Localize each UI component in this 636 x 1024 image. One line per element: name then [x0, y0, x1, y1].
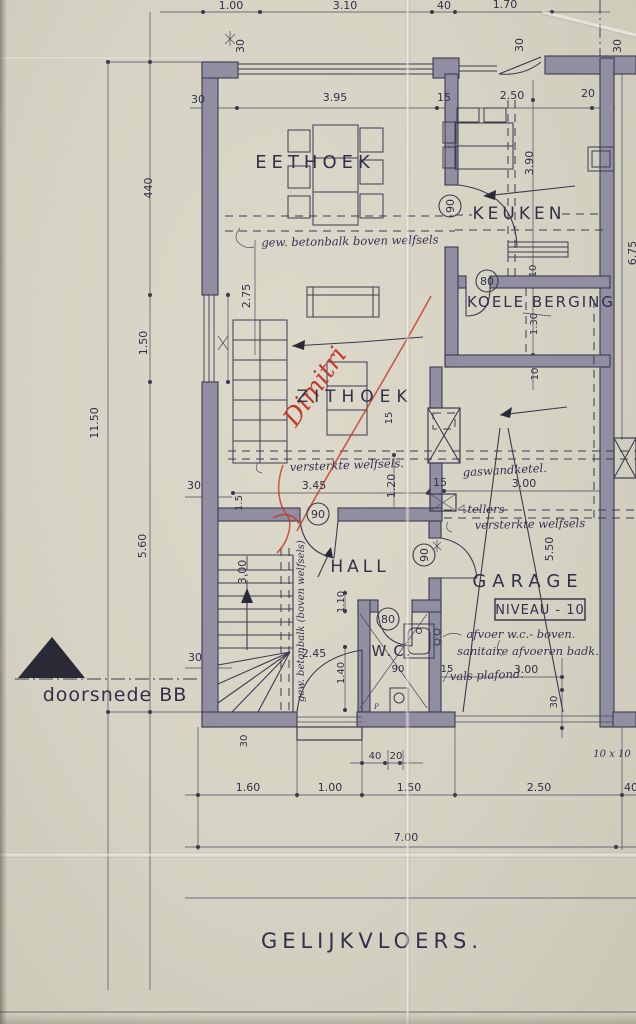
dim-wc-90: 90 [392, 664, 405, 675]
dim-gar-15: 15 [433, 476, 447, 489]
section-marker-triangle [18, 637, 85, 678]
dim-left-30-a: 30 [187, 479, 201, 492]
dim-top-4: 1.70 [493, 0, 518, 11]
note-p-mark: P [373, 703, 379, 711]
niveau-badge-label: NIVEAU - 10 [495, 603, 585, 618]
room-label-koele-berging: KOELE BERGING [467, 293, 615, 311]
room-label-eethoek: EETHOEK [255, 152, 375, 173]
door-width-hall: 90 [311, 508, 325, 521]
note-10x10: 10 x 10 [593, 749, 631, 760]
dim-top-1: 1.00 [219, 0, 244, 12]
dim-left-560: 5.60 [136, 534, 149, 559]
note-afvoer-wc: afvoer w.c.- boven. [467, 627, 576, 641]
dim-total-700: 7.00 [394, 831, 419, 844]
dim-row2-3: 15 [437, 91, 451, 104]
dim-bottom-4: 2.50 [527, 781, 552, 794]
dim-row2-1: 30 [191, 93, 205, 106]
dim-bot-40: 40 [369, 751, 382, 762]
dim-bottom-1: 1.60 [236, 781, 261, 794]
dim-bottom-2: 1.00 [318, 781, 343, 794]
dim-berg-10-a: 10 [528, 265, 539, 278]
dim-gar-300: 3.00 [512, 477, 537, 490]
dim-row2-2: 3.95 [323, 91, 348, 104]
dim-30-topright-2: 30 [611, 39, 624, 53]
door-width-berging: 80 [480, 275, 494, 288]
dim-zit-345: 3.45 [302, 479, 327, 492]
scanned-floorplan-paper: Dimitri 90 80 90 90 80 EETHOEK KEUKEN KO… [0, 0, 636, 1024]
dim-right-675: 6.75 [626, 241, 636, 266]
note-versterkte-1: versterkte welfsels. [290, 456, 405, 474]
dim-left-440: 440 [142, 178, 155, 199]
dim-bot-20: 20 [390, 751, 403, 762]
dim-wc-15: 15 [441, 664, 454, 675]
room-label-garage: GARAGE [472, 571, 583, 592]
note-sanitaire: sanitaire afvoeren badk. [457, 644, 599, 658]
dim-berg-130: 1.30 [529, 313, 540, 335]
dim-wc-300: 3.00 [514, 663, 539, 676]
room-label-keuken: KEUKEN [473, 204, 566, 224]
section-marker [18, 637, 85, 678]
page-title: GELIJKVLOERS. [261, 929, 483, 953]
dim-stair-300: 3.00 [236, 560, 249, 585]
note-beam-stairs: gew. betonbalk (boven welfsels) [296, 540, 307, 702]
dim-bot-30: 30 [239, 735, 250, 748]
dim-wc-30: 30 [549, 696, 560, 709]
room-label-hall: HALL [330, 557, 389, 577]
floor-plan-svg: Dimitri 90 80 90 90 80 EETHOEK KEUKEN KO… [0, 0, 636, 1024]
dim-30-topright-1: 30 [513, 38, 526, 52]
dim-top-2: 3.10 [333, 0, 358, 12]
note-versterkte-2: versterkte welfsels [475, 516, 586, 532]
door-width-keuken: 90 [444, 199, 457, 213]
dim-left-1150: 11.50 [88, 407, 101, 439]
dim-keuken-390: 3.90 [523, 151, 536, 176]
staircase [218, 555, 293, 712]
dim-bottom-3: 1.50 [397, 781, 422, 794]
dim-stair-15: 1.5 [234, 495, 245, 511]
note-tellers: tellers [468, 502, 505, 516]
door-width-garage: 90 [418, 548, 431, 562]
dim-berg-10-b: 10 [530, 368, 541, 381]
dim-hall-140: 1.40 [336, 662, 347, 684]
dim-zit-120: 1.20 [385, 474, 398, 499]
dim-left-275: 2.75 [240, 284, 253, 309]
dim-row2-5: 20 [581, 87, 595, 100]
section-label: doorsnede BB [43, 684, 188, 706]
dim-30-star: 30 [234, 39, 247, 53]
dim-hall-245: 2.45 [302, 647, 327, 660]
note-beam-top: gew. betonbalk boven welfsels [261, 232, 438, 249]
room-label-wc: W.C. [371, 642, 412, 660]
dim-left-30-b: 30 [188, 651, 202, 664]
dim-gar-550: 5.50 [543, 537, 556, 562]
room-label-zithoek: ZITHOEK [296, 387, 413, 407]
door-width-wc: 80 [381, 613, 395, 626]
dim-zit-15: 15 [384, 412, 395, 425]
dim-row2-4: 2.50 [500, 89, 525, 102]
dim-top-3: 40 [437, 0, 451, 12]
dim-bottom-5: 40 [624, 781, 636, 794]
dim-left-150: 1.50 [137, 331, 150, 356]
dim-hall-110: 1.10 [336, 591, 347, 613]
